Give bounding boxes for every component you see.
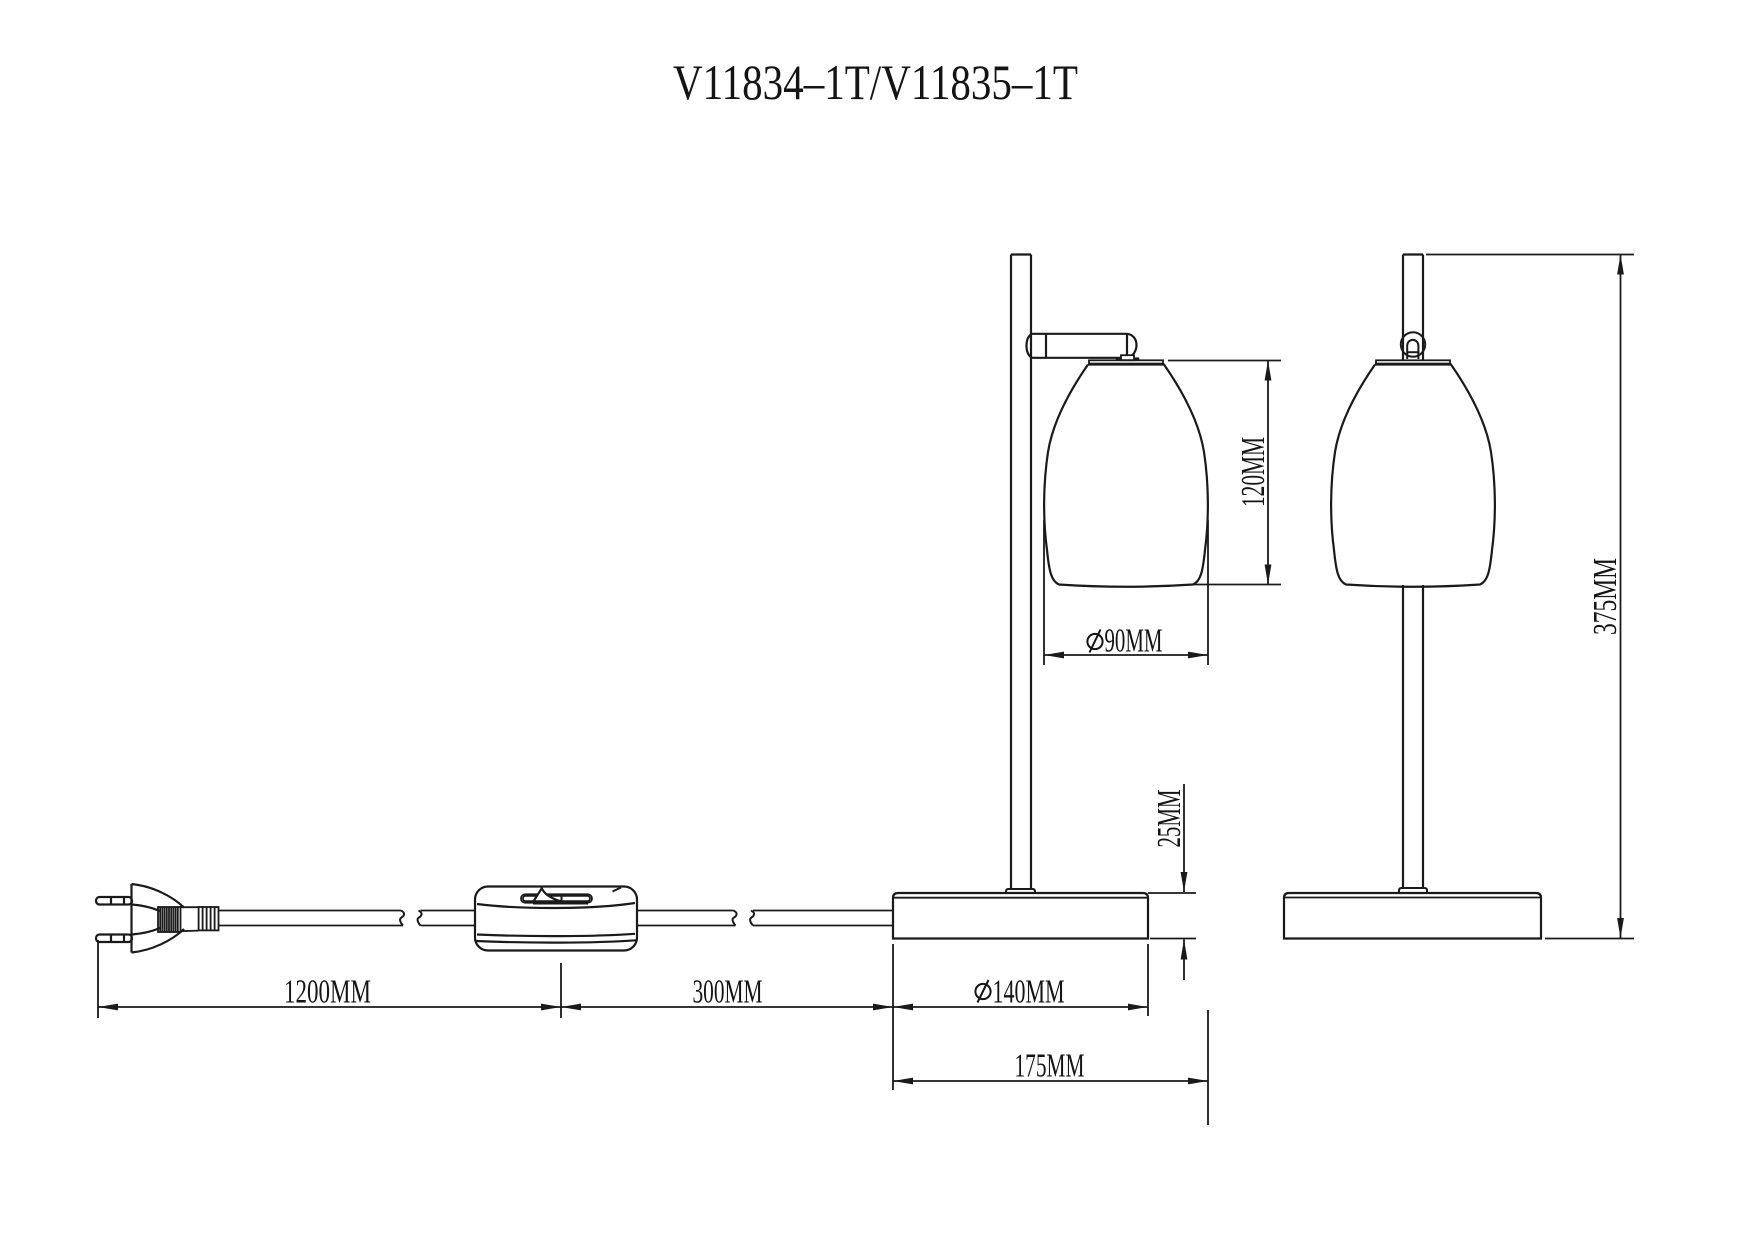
svg-text:300MM: 300MM [693, 974, 763, 1011]
svg-text:175MM: 175MM [1015, 1048, 1085, 1085]
svg-text:375MM: 375MM [1587, 558, 1624, 635]
svg-text:140MM: 140MM [993, 974, 1065, 1011]
svg-text:25MM: 25MM [1151, 790, 1188, 848]
svg-text:90MM: 90MM [1105, 623, 1163, 660]
svg-text:120MM: 120MM [1235, 437, 1272, 507]
svg-text:1200MM: 1200MM [284, 974, 371, 1011]
svg-text:V11834–1T/V11835–1T: V11834–1T/V11835–1T [673, 55, 1078, 110]
